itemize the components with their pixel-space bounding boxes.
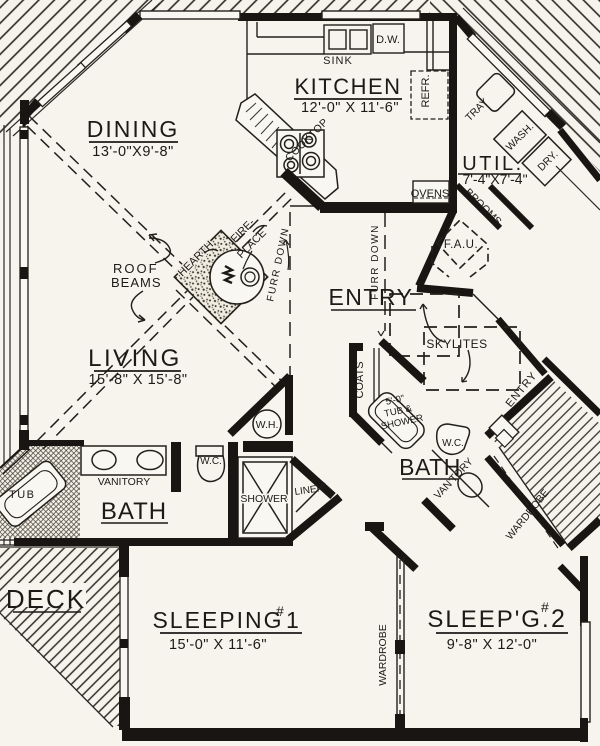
svg-text:REFR.: REFR. bbox=[420, 75, 432, 108]
svg-text:COATS: COATS bbox=[354, 361, 366, 398]
svg-text:SINK: SINK bbox=[323, 55, 353, 67]
svg-text:VANITORY: VANITORY bbox=[98, 476, 151, 488]
svg-text:SLEEP'G.: SLEEP'G. bbox=[427, 606, 550, 633]
svg-text:13'-0"X9'-8": 13'-0"X9'-8" bbox=[92, 144, 173, 160]
svg-text:DECK: DECK bbox=[6, 584, 86, 614]
svg-text:F.A.U.: F.A.U. bbox=[444, 239, 478, 251]
svg-text:BATH: BATH bbox=[101, 498, 167, 525]
svg-text:BEAMS: BEAMS bbox=[111, 275, 162, 290]
svg-text:15'-8" X 15'-8": 15'-8" X 15'-8" bbox=[88, 372, 187, 388]
svg-text:DINING: DINING bbox=[87, 116, 180, 142]
svg-text:#: # bbox=[541, 599, 549, 615]
svg-text:W.C.: W.C. bbox=[442, 438, 464, 449]
svg-text:FURR DOWN: FURR DOWN bbox=[370, 224, 381, 300]
svg-text:#: # bbox=[276, 603, 284, 619]
svg-text:7'-4"X7'-4": 7'-4"X7'-4" bbox=[462, 171, 527, 187]
svg-text:12'-0" X 11'-6": 12'-0" X 11'-6" bbox=[301, 100, 399, 116]
svg-text:TUB: TUB bbox=[9, 489, 36, 501]
svg-text:ROOF: ROOF bbox=[113, 261, 159, 276]
svg-text:SKYLITES: SKYLITES bbox=[426, 337, 487, 351]
svg-text:D.W.: D.W. bbox=[376, 34, 400, 46]
svg-text:2: 2 bbox=[551, 605, 565, 633]
svg-text:SHOWER: SHOWER bbox=[240, 493, 288, 505]
svg-text:SLEEPING: SLEEPING bbox=[152, 607, 283, 633]
svg-text:W.H.: W.H. bbox=[256, 419, 279, 431]
svg-text:1: 1 bbox=[286, 607, 299, 633]
svg-text:OVENS: OVENS bbox=[411, 188, 450, 200]
svg-text:LIVING: LIVING bbox=[88, 345, 182, 372]
svg-text:KITCHEN: KITCHEN bbox=[294, 74, 401, 99]
svg-text:W.C.: W.C. bbox=[200, 456, 222, 467]
svg-text:15'-0" X 11'-6": 15'-0" X 11'-6" bbox=[169, 637, 267, 653]
svg-text:WARDROBE: WARDROBE bbox=[377, 624, 389, 685]
svg-text:9'-8" X 12'-0": 9'-8" X 12'-0" bbox=[447, 637, 538, 653]
